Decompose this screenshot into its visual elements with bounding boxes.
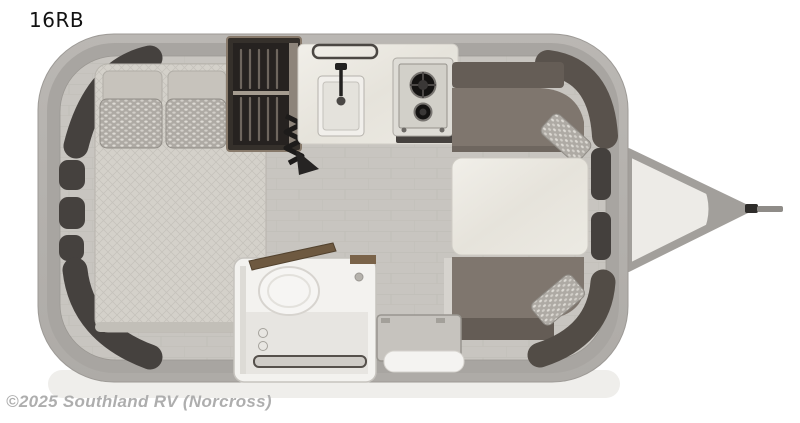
floorplan-drawing xyxy=(0,0,800,423)
entry-step xyxy=(384,351,464,372)
flush-control-1 xyxy=(259,329,268,338)
sofa-back-bottom xyxy=(452,318,554,340)
entry-mat-mark-2 xyxy=(436,318,445,323)
bathroom xyxy=(234,243,376,382)
model-label: 16RB xyxy=(29,8,84,32)
dinette-table xyxy=(452,158,588,255)
entry xyxy=(377,315,464,372)
cooktop-knob-2 xyxy=(440,128,445,133)
cooktop xyxy=(393,58,453,136)
bathroom-vent xyxy=(355,273,363,281)
floorplan-page: 16RB ©2025 Southland RV (Norcross) xyxy=(0,0,800,423)
kitchen xyxy=(298,44,458,144)
bathroom-wall-strip xyxy=(240,266,246,374)
pillow-accent-left xyxy=(100,99,162,148)
storage-slot-right-1 xyxy=(591,148,611,200)
sofa-back-top xyxy=(452,62,564,88)
entry-mat-mark-1 xyxy=(381,318,390,323)
storage-slot-right-2 xyxy=(591,212,611,260)
dinette xyxy=(444,62,611,355)
wardrobe-shelf xyxy=(233,91,289,95)
storage-slot-left-1 xyxy=(59,160,85,190)
flush-control-2 xyxy=(259,342,268,351)
storage-slot-left-2 xyxy=(59,197,85,229)
storage-slot-left-3 xyxy=(59,235,84,261)
cooktop-knob-1 xyxy=(402,128,407,133)
watermark-text: ©2025 Southland RV (Norcross) xyxy=(6,392,272,412)
hitch-tip xyxy=(703,185,747,233)
hitch-coupler xyxy=(745,204,758,213)
burner-large xyxy=(410,72,436,98)
door-frame-wood xyxy=(350,255,376,264)
hitch-jack-rod xyxy=(757,206,783,212)
burner-small xyxy=(415,104,432,121)
pillow-accent-right xyxy=(166,99,226,148)
shower-drain xyxy=(254,356,366,367)
hitch xyxy=(628,152,783,268)
